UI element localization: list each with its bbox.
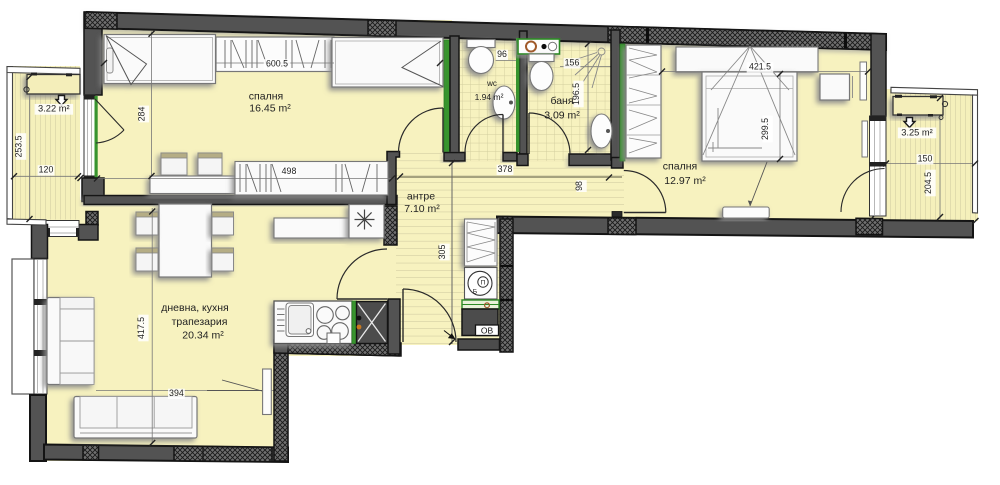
svg-text:204.5: 204.5 bbox=[923, 172, 933, 194]
svg-text:421.5: 421.5 bbox=[749, 62, 771, 72]
svg-text:трапезария: трапезария bbox=[172, 316, 228, 328]
svg-text:3.25 m²: 3.25 m² bbox=[901, 127, 933, 137]
svg-text:wc: wc bbox=[486, 79, 497, 88]
svg-text:98: 98 bbox=[574, 181, 584, 191]
svg-text:498: 498 bbox=[282, 166, 297, 176]
svg-text:12.97 m²: 12.97 m² bbox=[664, 175, 706, 187]
svg-text:394: 394 bbox=[169, 388, 184, 398]
svg-text:196.5: 196.5 bbox=[571, 83, 581, 105]
svg-text:299.5: 299.5 bbox=[760, 118, 770, 140]
svg-text:дневна, кухня: дневна, кухня bbox=[161, 302, 229, 314]
svg-text:120: 120 bbox=[39, 165, 54, 175]
svg-text:Б: Б bbox=[473, 288, 478, 295]
svg-text:20.34 m²: 20.34 m² bbox=[182, 330, 224, 342]
svg-text:спалня: спалня bbox=[249, 91, 283, 103]
svg-text:7.10 m²: 7.10 m² bbox=[404, 203, 440, 215]
svg-text:ОВ: ОВ bbox=[481, 326, 494, 336]
svg-text:417.5: 417.5 bbox=[136, 317, 146, 339]
svg-text:253.5: 253.5 bbox=[14, 135, 24, 157]
svg-text:150: 150 bbox=[918, 154, 933, 164]
svg-text:1.94 m²: 1.94 m² bbox=[475, 92, 504, 102]
svg-text:305: 305 bbox=[437, 245, 447, 260]
svg-text:378: 378 bbox=[498, 164, 513, 174]
svg-text:16.45 m²: 16.45 m² bbox=[249, 103, 291, 115]
svg-text:П: П bbox=[481, 280, 486, 287]
svg-text:3.09 m²: 3.09 m² bbox=[544, 110, 580, 122]
svg-text:600.5: 600.5 bbox=[266, 59, 288, 69]
svg-text:3.22 m²: 3.22 m² bbox=[38, 104, 70, 114]
svg-text:96: 96 bbox=[497, 49, 507, 59]
svg-text:156: 156 bbox=[565, 58, 580, 68]
svg-text:антре: антре bbox=[407, 191, 435, 203]
svg-text:284: 284 bbox=[137, 107, 147, 122]
svg-text:спалня: спалня bbox=[663, 161, 697, 173]
